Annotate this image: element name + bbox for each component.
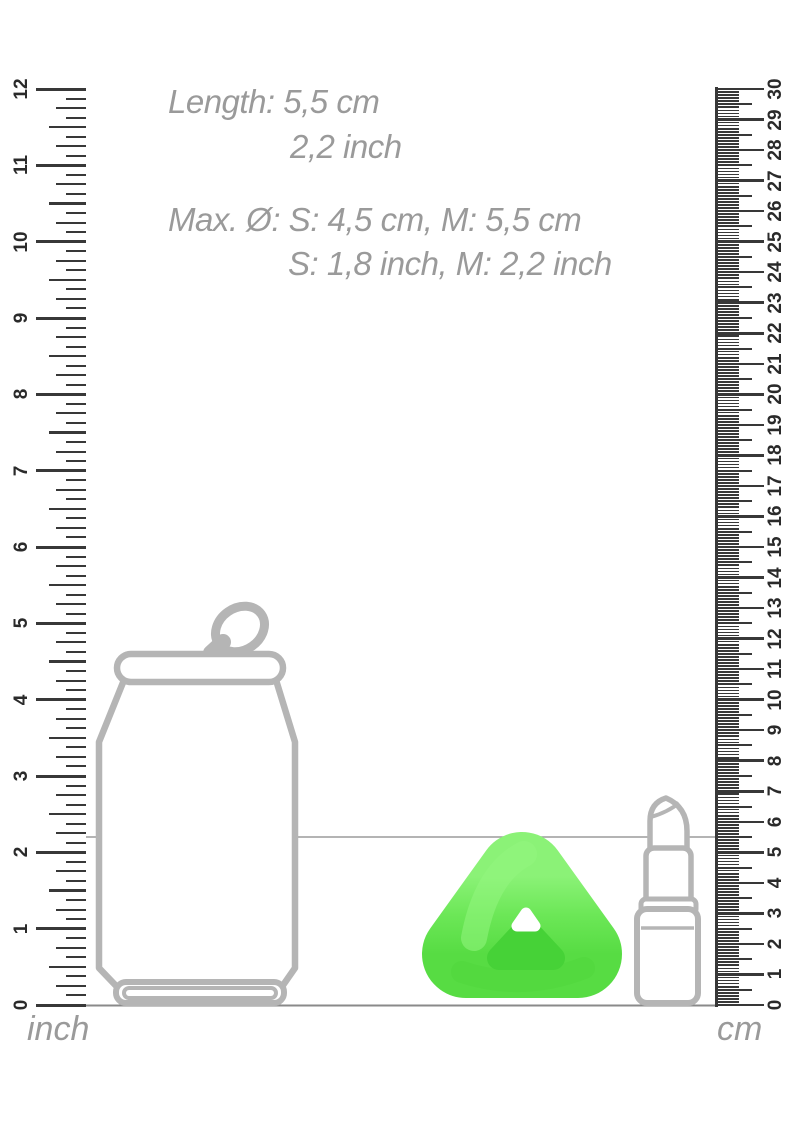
ruler-tick	[718, 128, 739, 130]
ruler-tick	[718, 711, 739, 713]
ruler-tick	[718, 103, 752, 105]
ruler-tick	[66, 689, 86, 691]
ruler-tick	[66, 785, 86, 787]
ruler-tick	[56, 489, 86, 491]
ruler-tick	[718, 506, 739, 508]
ruler-tick	[66, 346, 86, 348]
ruler-tick	[718, 204, 739, 206]
ruler-tick	[718, 702, 739, 704]
ruler-tick	[718, 290, 739, 292]
ruler-tick	[718, 662, 739, 664]
ruler-tick	[66, 613, 86, 615]
ruler-tick	[718, 314, 739, 316]
ruler-tick	[718, 232, 739, 234]
ruler-tick	[718, 345, 739, 347]
ruler-tick	[718, 88, 764, 91]
ruler-tick	[718, 149, 764, 152]
ruler-tick	[66, 193, 86, 195]
ruler-tick	[718, 992, 739, 994]
ruler-tick	[718, 937, 739, 939]
ruler-tick	[718, 744, 752, 746]
ruler-tick	[718, 430, 739, 432]
ruler-tick	[718, 592, 752, 594]
ruler-tick	[718, 448, 739, 450]
ruler-tick	[718, 616, 739, 618]
ruler-tick	[718, 564, 739, 566]
ruler-tick	[718, 146, 739, 148]
ruler-tick	[718, 323, 739, 325]
ruler-tick	[718, 900, 739, 902]
ruler-tick	[718, 763, 739, 765]
ruler-tick	[718, 161, 739, 163]
ruler-tick	[718, 439, 752, 441]
ruler-tick	[56, 603, 86, 605]
ruler-tick	[36, 240, 86, 243]
ruler-tick	[718, 757, 739, 759]
cm-unit-label: cm	[717, 1010, 762, 1049]
ruler-tick	[718, 647, 739, 649]
ruler-tick	[718, 787, 739, 789]
ruler-number: 8	[12, 374, 32, 414]
ruler-tick	[718, 864, 739, 866]
ruler-tick	[718, 393, 764, 396]
ruler-tick	[718, 513, 739, 515]
ruler-tick	[66, 575, 86, 577]
ruler-tick	[718, 433, 739, 435]
ruler-tick	[718, 403, 739, 405]
ruler-tick	[718, 436, 739, 438]
ruler-tick	[718, 989, 752, 991]
ruler-tick	[718, 177, 739, 179]
ruler-tick	[66, 174, 86, 176]
ruler-tick	[718, 256, 752, 258]
ruler-tick	[49, 813, 86, 816]
ruler-tick	[718, 784, 739, 786]
ruler-tick	[66, 384, 86, 386]
ruler-tick	[718, 803, 739, 805]
ruler-tick	[718, 903, 739, 905]
ruler-tick	[718, 571, 739, 573]
product-inner-shadow	[499, 929, 553, 958]
ruler-tick	[718, 693, 739, 695]
ruler-tick	[718, 464, 739, 466]
ruler-tick	[718, 861, 739, 863]
ruler-tick	[718, 729, 764, 732]
ruler-tick	[718, 332, 764, 335]
ruler-tick	[718, 238, 739, 240]
ruler-tick	[56, 374, 86, 376]
ruler-tick	[718, 644, 739, 646]
ruler-tick	[718, 748, 739, 750]
ruler-tick	[718, 812, 739, 814]
ruler-tick	[718, 320, 739, 322]
ruler-tick	[718, 971, 739, 973]
ruler-tick	[718, 781, 739, 783]
ruler-tick	[718, 668, 764, 671]
ruler-tick	[718, 708, 739, 710]
ruler-tick	[718, 186, 739, 188]
ruler-tick	[718, 629, 739, 631]
ruler-tick	[718, 766, 739, 768]
ruler-tick	[718, 262, 739, 264]
ruler-tick	[718, 769, 739, 771]
ruler-tick	[718, 412, 739, 414]
ruler-tick	[718, 879, 739, 881]
ruler-tick	[718, 576, 764, 579]
inch-unit-label: inch	[27, 1010, 89, 1049]
ruler-tick	[66, 880, 86, 882]
ruler-tick	[718, 888, 739, 890]
ruler-tick	[36, 851, 86, 854]
ruler-tick	[718, 775, 752, 777]
ruler-tick	[718, 467, 739, 469]
ruler-tick	[36, 927, 86, 930]
ruler-tick	[718, 561, 752, 563]
ruler-tick	[718, 998, 739, 1000]
ruler-tick	[718, 339, 739, 341]
ruler-tick	[718, 855, 739, 857]
ruler-tick	[718, 213, 739, 215]
ruler-tick	[718, 424, 764, 427]
ruler-tick	[66, 899, 86, 901]
ruler-tick	[718, 421, 739, 423]
ruler-tick	[718, 134, 752, 136]
ruler-tick	[718, 632, 739, 634]
ruler-tick	[718, 500, 752, 502]
ruler-tick	[718, 671, 739, 673]
ruler-tick	[718, 311, 739, 313]
ruler-tick	[718, 759, 764, 762]
ruler-tick	[718, 400, 739, 402]
ruler-tick	[718, 919, 739, 921]
ruler-tick	[66, 651, 86, 653]
ruler-tick	[718, 683, 752, 685]
ruler-tick	[66, 994, 86, 996]
ruler-tick	[66, 842, 86, 844]
ruler-tick	[66, 556, 86, 558]
ruler-tick	[36, 393, 86, 396]
ruler-tick	[718, 284, 739, 286]
ruler-tick	[718, 848, 739, 850]
ruler-tick	[718, 293, 739, 295]
ruler-tick	[718, 717, 739, 719]
ruler-tick	[718, 106, 739, 108]
ruler-tick	[718, 720, 739, 722]
ruler-tick	[718, 552, 739, 554]
ruler-tick	[718, 348, 752, 350]
ruler-tick	[718, 604, 739, 606]
ruler-tick	[718, 271, 764, 274]
ruler-tick	[718, 207, 739, 209]
ruler-tick	[718, 528, 739, 530]
ruler-tick	[718, 473, 739, 475]
ruler-tick	[718, 281, 739, 283]
ruler-tick	[718, 335, 739, 337]
ruler-tick	[718, 946, 739, 948]
ruler-tick	[49, 355, 86, 358]
ruler-tick	[718, 659, 739, 661]
ruler-tick	[718, 427, 739, 429]
ruler-tick	[66, 250, 86, 252]
ruler-tick	[718, 301, 764, 304]
ruler-tick	[718, 470, 752, 472]
ruler-tick	[718, 619, 739, 621]
ruler-tick	[66, 975, 86, 977]
ruler-tick	[56, 832, 86, 834]
ruler-tick	[49, 431, 86, 434]
ruler-tick	[66, 861, 86, 863]
ruler-tick	[718, 110, 739, 112]
ruler-tick	[56, 909, 86, 911]
ruler-tick	[718, 800, 739, 802]
ruler-tick	[718, 195, 752, 197]
ruler-tick	[66, 727, 86, 729]
ruler-tick	[718, 836, 752, 838]
ruler-tick	[718, 326, 739, 328]
ruler-tick	[718, 674, 739, 676]
ruler-tick	[49, 660, 86, 663]
ruler-tick	[66, 136, 86, 138]
ruler-tick	[56, 794, 86, 796]
ruler-tick	[718, 558, 739, 560]
ruler-tick	[718, 821, 764, 824]
ruler-tick	[718, 574, 739, 576]
ruler-tick	[718, 519, 739, 521]
ruler-tick	[718, 543, 739, 545]
ruler-tick	[66, 670, 86, 672]
ruler-tick	[36, 622, 86, 625]
ruler-tick	[36, 546, 86, 549]
ruler-tick	[718, 833, 739, 835]
ruler-tick	[718, 491, 739, 493]
ruler-tick	[718, 680, 739, 682]
ruler-tick	[718, 118, 764, 121]
ruler-tick	[66, 155, 86, 157]
ruler-tick	[718, 525, 739, 527]
ruler-tick	[718, 983, 739, 985]
ruler-tick	[718, 198, 739, 200]
ruler-tick	[36, 164, 86, 167]
ruler-number: 6	[12, 527, 32, 567]
ruler-number: 7	[12, 451, 32, 491]
ruler-tick	[36, 317, 86, 320]
ruler-tick	[718, 317, 752, 319]
ruler-tick	[66, 212, 86, 214]
ruler-tick	[718, 540, 739, 542]
ruler-tick	[718, 607, 764, 610]
ruler-tick	[66, 823, 86, 825]
ruler-tick	[66, 918, 86, 920]
ruler-tick	[718, 726, 739, 728]
ruler-tick	[718, 171, 739, 173]
ruler-tick	[718, 384, 739, 386]
ruler-tick	[718, 845, 739, 847]
ruler-tick	[718, 305, 739, 307]
ruler-tick	[718, 739, 739, 741]
ruler-tick	[49, 279, 86, 282]
ruler-number: 3	[12, 756, 32, 796]
ruler-tick	[718, 793, 739, 795]
ruler-tick	[718, 891, 739, 893]
ruler-tick	[718, 586, 739, 588]
ruler-tick	[718, 555, 739, 557]
ruler-tick	[718, 342, 739, 344]
ruler-tick	[718, 387, 739, 389]
ruler-tick	[718, 637, 764, 640]
ruler-tick	[66, 937, 86, 939]
ruler-tick	[718, 369, 739, 371]
ruler-tick	[718, 250, 739, 252]
ruler-tick	[718, 155, 739, 157]
ruler-tick	[718, 308, 739, 310]
ruler-tick	[56, 298, 86, 300]
ruler-tick	[718, 995, 739, 997]
ruler-tick	[36, 469, 86, 472]
ruler-tick	[718, 986, 739, 988]
ruler-tick	[718, 461, 739, 463]
ruler-tick	[718, 867, 752, 869]
ruler-tick	[718, 454, 764, 457]
ruler-tick	[718, 665, 739, 667]
ruler-tick	[718, 97, 739, 99]
ruler-tick	[718, 973, 764, 976]
ruler-tick	[718, 873, 739, 875]
ruler-tick	[718, 363, 764, 366]
ruler-tick	[718, 580, 739, 582]
ruler-tick	[66, 365, 86, 367]
ruler-tick	[718, 1001, 739, 1003]
ruler-tick	[718, 445, 739, 447]
ruler-tick	[66, 632, 86, 634]
ruler-tick	[718, 158, 739, 160]
ruler-tick	[718, 677, 739, 679]
ruler-tick	[718, 534, 739, 536]
ruler-tick	[718, 598, 739, 600]
ruler-tick	[718, 751, 739, 753]
ruler-tick	[718, 494, 739, 496]
ruler-tick	[718, 949, 739, 951]
ruler-tick	[718, 876, 739, 878]
ruler-tick	[718, 225, 752, 227]
ruler-tick	[718, 201, 739, 203]
ruler-tick	[718, 894, 739, 896]
ruler-tick	[56, 107, 86, 109]
ruler-tick	[718, 931, 739, 933]
ruler-number: 4	[12, 680, 32, 720]
ruler-tick	[718, 589, 739, 591]
ruler-tick	[718, 360, 739, 362]
ruler-tick	[718, 91, 739, 93]
ruler-tick	[718, 482, 739, 484]
ruler-tick	[718, 503, 739, 505]
ruler-tick	[66, 956, 86, 958]
ruler-tick	[718, 299, 739, 301]
ruler-tick	[66, 517, 86, 519]
ruler-tick	[718, 940, 739, 942]
ruler-tick	[56, 870, 86, 872]
ruler-tick	[718, 732, 739, 734]
ruler-tick	[56, 336, 86, 338]
ruler-tick	[66, 288, 86, 290]
ruler-tick	[718, 635, 739, 637]
ruler-tick	[718, 488, 739, 490]
ruler-tick	[718, 815, 739, 817]
ruler-tick	[718, 329, 739, 331]
ruler-tick	[66, 479, 86, 481]
ruler-tick	[718, 650, 739, 652]
ruler-tick	[66, 441, 86, 443]
ruler-tick	[718, 179, 764, 182]
ruler-tick	[36, 775, 86, 778]
ruler-number: 11	[12, 145, 32, 185]
ruler-tick	[718, 268, 739, 270]
ruler-tick	[36, 88, 86, 91]
ruler-tick	[718, 977, 739, 979]
ruler-tick	[718, 375, 739, 377]
ruler-tick	[66, 498, 86, 500]
ruler-tick	[718, 568, 739, 570]
ruler-tick	[66, 804, 86, 806]
ruler-tick	[36, 1004, 86, 1007]
ruler-tick	[718, 113, 739, 115]
ruler-number: 1	[12, 909, 32, 949]
ruler-tick	[718, 641, 739, 643]
ruler-tick	[718, 409, 752, 411]
ruler-tick	[718, 479, 739, 481]
ruler-tick	[718, 522, 739, 524]
ruler-tick	[718, 485, 764, 488]
ruler-tick	[718, 537, 739, 539]
ruler-tick	[718, 696, 739, 698]
ruler-tick	[718, 870, 739, 872]
ruler-tick	[718, 858, 739, 860]
ruler-tick	[66, 594, 86, 596]
ruler-tick	[66, 746, 86, 748]
ruler-tick	[718, 698, 764, 701]
ruler-tick	[718, 714, 752, 716]
ruler-tick	[718, 980, 739, 982]
ruler-tick	[56, 145, 86, 147]
ruler-tick	[718, 705, 739, 707]
ruler-tick	[718, 968, 739, 970]
ruler-tick	[718, 122, 739, 124]
ruler-tick	[718, 790, 764, 793]
ruler-tick	[718, 723, 739, 725]
ruler-tick	[718, 222, 739, 224]
ruler-tick	[718, 351, 739, 353]
cm-ruler: 0123456789101112131415161718192021222324…	[715, 0, 800, 1132]
ruler-tick	[718, 583, 739, 585]
ruler-tick	[718, 418, 739, 420]
ruler-tick	[718, 778, 739, 780]
ruler-tick	[718, 549, 739, 551]
ruler-tick	[718, 366, 739, 368]
ruler-tick	[718, 140, 739, 142]
ruler-tick	[718, 125, 739, 127]
ruler-tick	[718, 265, 739, 267]
ruler-tick	[56, 527, 86, 529]
ruler-tick	[718, 909, 739, 911]
inch-ruler: 0123456789101112	[0, 0, 86, 1132]
ruler-tick	[718, 839, 739, 841]
ruler-tick	[36, 698, 86, 701]
ruler-number: 5	[12, 603, 32, 643]
soda-can-outline	[99, 597, 295, 1003]
ruler-tick	[718, 277, 739, 279]
ruler-tick	[49, 966, 86, 969]
can-base-rim	[124, 988, 276, 998]
ruler-tick	[56, 947, 86, 949]
